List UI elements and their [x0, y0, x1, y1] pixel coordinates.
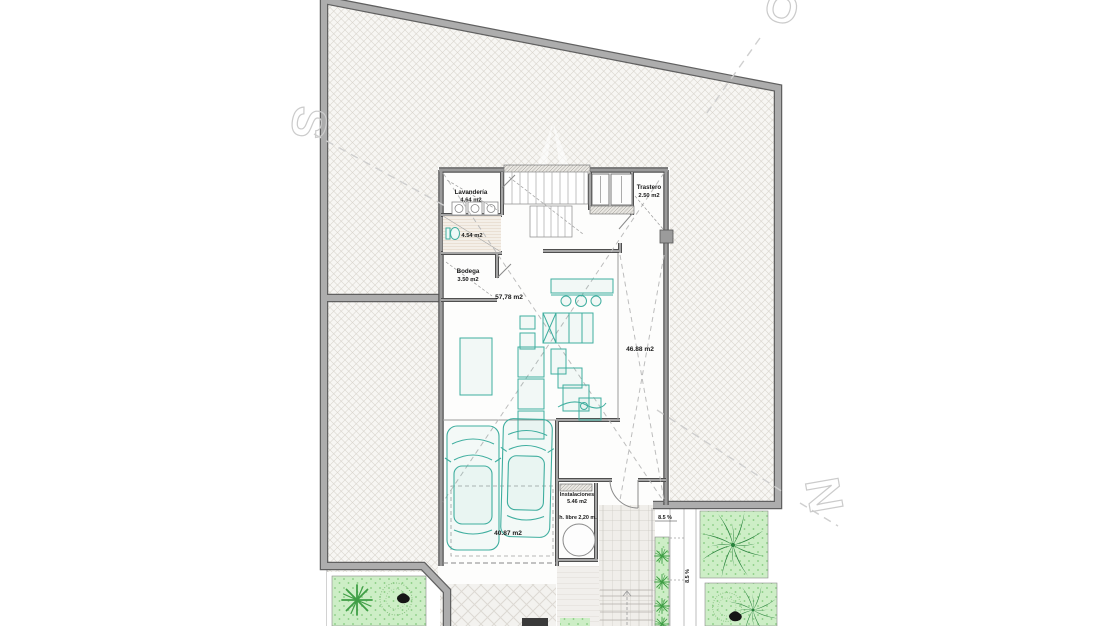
room-label-instalaciones: Instalaciones: [560, 492, 594, 498]
garden-right-lower: [705, 583, 777, 626]
area-label-right-zone: 46.88 m2: [626, 346, 654, 353]
label-ramp-slope: 8.5 %: [658, 515, 672, 521]
room-area-trastero: 2.50 m2: [638, 193, 659, 199]
garden-left: [332, 576, 426, 626]
room-label-trastero: Trastero: [637, 184, 662, 191]
toilet-icon: [446, 228, 460, 240]
garden-patch-small: [560, 618, 590, 626]
label-ramp-slope-side: 8.5 %: [685, 569, 691, 583]
area-label-salon: 57,78 m2: [495, 294, 523, 301]
room-area-instalaciones: 5.46 m2: [567, 499, 587, 505]
laundry-appliances: [452, 202, 498, 215]
room-area-lavanderia: 4.64 m2: [460, 198, 481, 204]
area-label-garage: 40.87 m2: [494, 530, 522, 537]
garden-strip: [655, 537, 670, 626]
floor-plan-page: Lavandería 4.64 m2 4.54 m2 Bodega 3.50 m…: [0, 0, 1110, 626]
water-tank-icon: [563, 524, 595, 556]
room-label-lavanderia: Lavandería: [455, 189, 488, 196]
closets: [592, 174, 632, 205]
watermark-letter-n: N: [794, 474, 852, 517]
room-area-bodega: 3.50 m2: [457, 277, 478, 283]
plank-path: [557, 566, 599, 626]
car-icon: [498, 418, 554, 537]
car-icon: [445, 426, 501, 550]
floor-plan-svg: Lavandería 4.64 m2 4.54 m2 Bodega 3.50 m…: [0, 0, 1110, 626]
watermark-letter-o: O: [760, 0, 804, 35]
room-label-bodega: Bodega: [457, 268, 480, 275]
garden-right-upper: [700, 511, 768, 578]
room-area-aseo: 4.54 m2: [461, 233, 482, 239]
grate: [522, 618, 548, 626]
plant-icon: [342, 585, 372, 615]
label-free-height: h. libre 2,20 m.: [559, 515, 597, 521]
